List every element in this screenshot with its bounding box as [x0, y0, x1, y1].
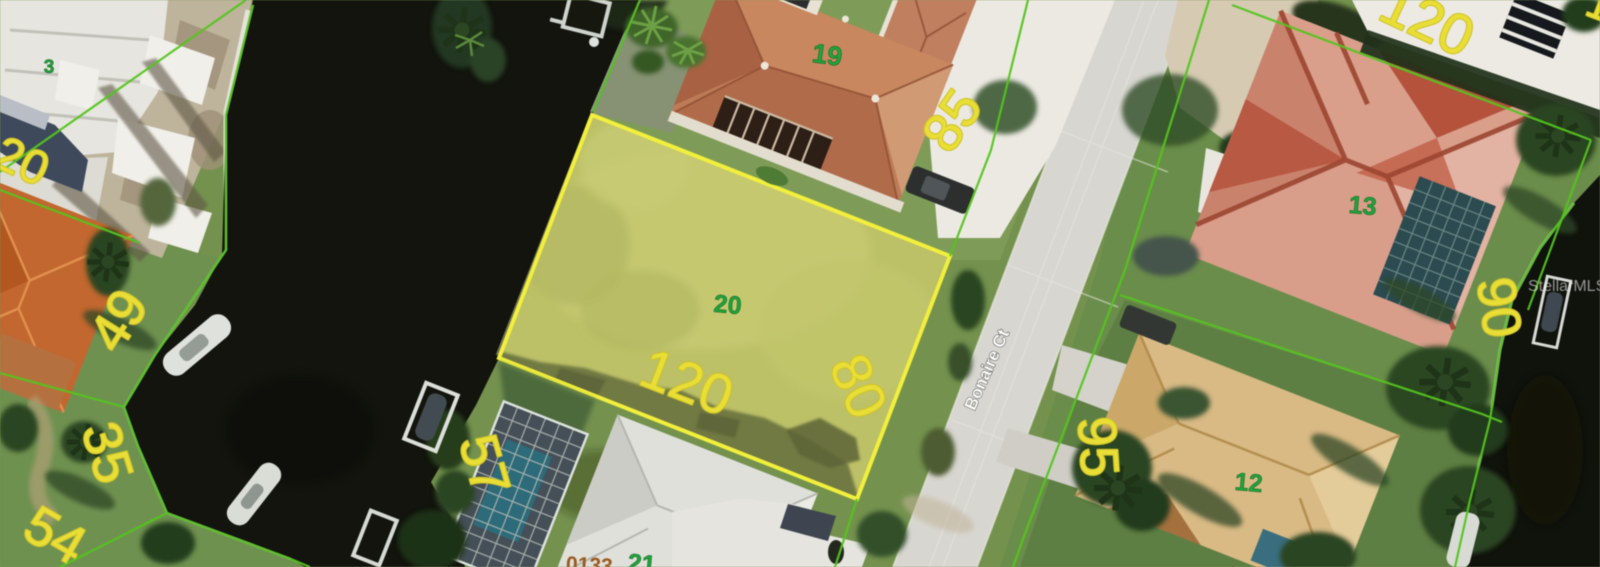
svg-text:StellarMLS: StellarMLS [1528, 278, 1600, 295]
svg-text:21: 21 [627, 549, 657, 567]
svg-text:12: 12 [1234, 468, 1264, 498]
svg-text:20: 20 [713, 290, 743, 320]
svg-text:19: 19 [810, 38, 844, 72]
svg-text:90: 90 [1465, 274, 1533, 342]
svg-text:95: 95 [1066, 415, 1130, 479]
svg-text:13: 13 [1348, 191, 1378, 221]
svg-text:0133: 0133 [565, 553, 613, 567]
svg-text:3: 3 [44, 57, 55, 78]
